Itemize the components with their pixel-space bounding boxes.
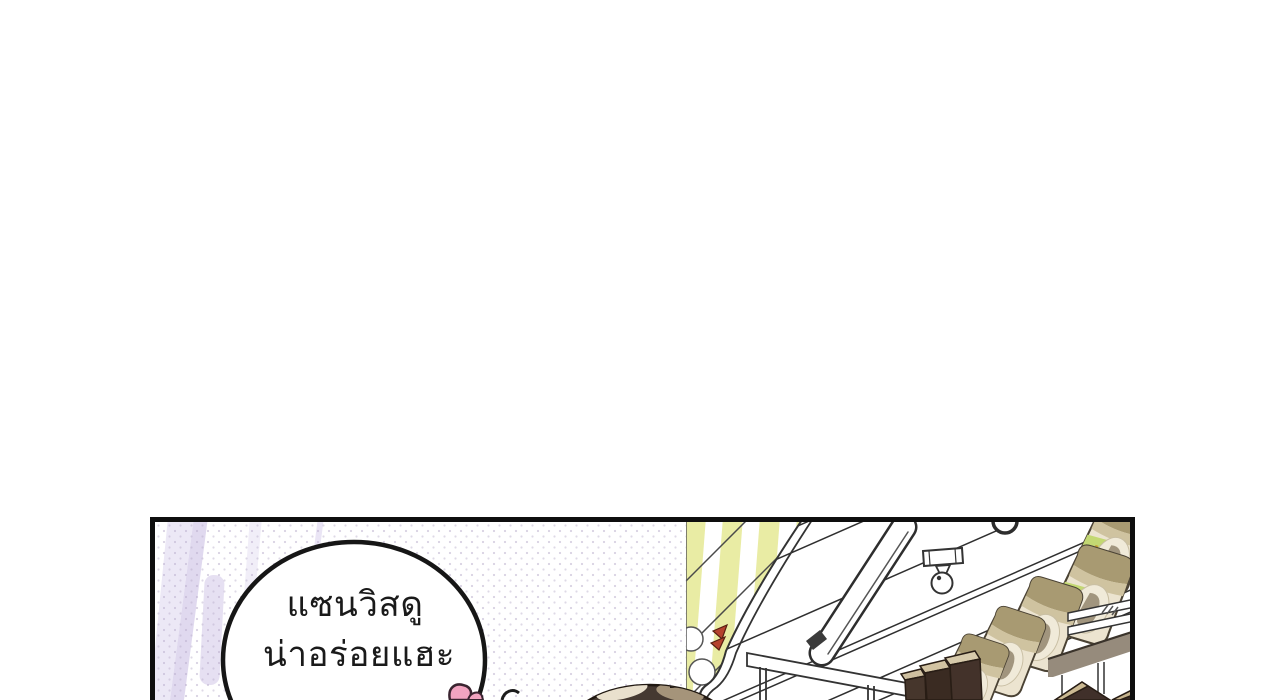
speech-bubble-text-line2: น่าอร่อยแฮะ [263,634,455,678]
page-background: แซนวิสดู น่าอร่อยแฮะ [0,0,1280,700]
store-interior [672,517,1135,700]
speech-bubble-text-line1: แซนวิสดู [287,584,424,628]
comic-panel: แซนวิสดู น่าอร่อยแฮะ [150,517,1135,700]
